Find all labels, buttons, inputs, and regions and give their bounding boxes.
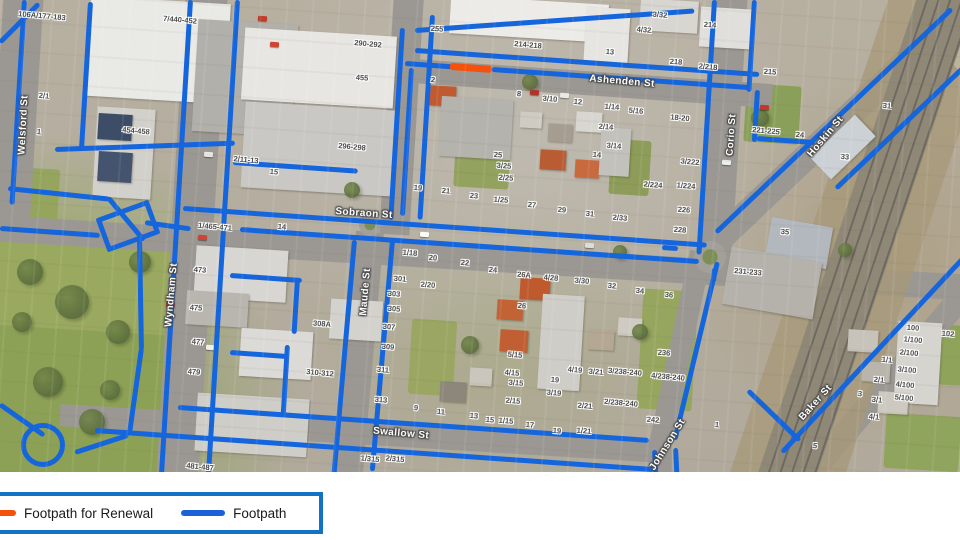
legend-footpath-label: Footpath: [233, 506, 286, 521]
parcel-label: 2/1: [38, 92, 49, 100]
parcel-label: 34: [636, 287, 645, 295]
parcel-label: 2: [431, 76, 436, 84]
building: [329, 298, 383, 341]
parcel-label: 1/21: [576, 427, 591, 436]
parcel-label: 2/238-240: [604, 398, 638, 408]
parcel-label: 479: [187, 368, 200, 377]
parcel-label: 3/19: [546, 389, 561, 398]
parcel-label: 5/15: [507, 351, 522, 360]
parcel-label: 3/222: [680, 157, 699, 166]
parcel-label: 5/16: [628, 107, 643, 116]
parcel-label: 4/28: [543, 274, 558, 283]
footpath-segment: [673, 448, 683, 472]
parcel-label: 13: [470, 412, 479, 420]
tree: [838, 243, 852, 257]
parcel-label: 2/25: [498, 174, 513, 183]
building: [438, 96, 514, 160]
parcel-label: 2/14: [598, 123, 613, 132]
tree: [106, 320, 130, 344]
parcel-label: 481-487: [186, 462, 214, 472]
parcel-label: 221-225: [752, 126, 780, 136]
parcel-label: 3/32: [652, 11, 667, 20]
building: [241, 101, 398, 196]
parcel-label: 3/15: [508, 379, 523, 388]
parcel-label: 214-218: [514, 40, 542, 50]
parcel-label: 9: [414, 404, 419, 412]
parcel-label: 4/19: [567, 366, 582, 375]
car: [560, 93, 569, 99]
parcel-label: 2/11-13: [233, 155, 259, 165]
parcel-label: 8: [517, 90, 522, 98]
parcel-label: 3/14: [606, 142, 621, 151]
building: [587, 329, 614, 351]
parcel-label: 12: [574, 98, 583, 106]
parcel-label: 4/32: [636, 26, 651, 35]
parcel-label: 24: [489, 266, 498, 274]
parcel-label: 23: [470, 192, 479, 200]
parcel-label: 290-292: [354, 39, 382, 49]
legend-renewal-label: Footpath for Renewal: [24, 506, 153, 521]
parcel-label: 18-20: [670, 113, 690, 122]
parcel-label: 15: [270, 168, 279, 176]
parcel-label: 228: [673, 226, 686, 235]
parcel-label: 33: [841, 153, 850, 161]
parcel-label: 3/100: [897, 365, 916, 374]
parcel-label: 24: [796, 131, 805, 139]
parcel-label: 3: [858, 390, 863, 398]
parcel-label: 2/100: [899, 348, 918, 357]
parcel-label: 226: [677, 206, 690, 215]
parcel-label: 301: [393, 275, 406, 284]
parcel-label: 31: [586, 210, 595, 218]
parcel-label: 26A: [517, 271, 531, 280]
tree: [522, 74, 538, 90]
parcel-label: 2/15: [505, 397, 520, 406]
parcel-label: 14: [278, 223, 287, 231]
parcel-label: 242: [646, 416, 659, 425]
parcel-label: 311: [377, 366, 390, 375]
parcel-label: 31: [883, 102, 892, 110]
parcel-label: 5: [813, 442, 818, 450]
renewal-line-swatch: [0, 510, 16, 516]
car: [420, 232, 429, 238]
footpath-loop: [21, 423, 65, 467]
tree: [12, 312, 32, 332]
parcel-label: 313: [374, 396, 387, 405]
parcel-label: 19: [414, 184, 423, 192]
parcel-label: 303: [387, 290, 400, 299]
parcel-label: 2/21: [577, 402, 592, 411]
parcel-label: 32: [608, 282, 617, 290]
parcel-label: 475: [189, 304, 202, 313]
car: [722, 160, 731, 166]
park-area: [883, 413, 960, 472]
tree: [17, 259, 43, 285]
parcel-label: 3/1: [871, 396, 882, 404]
parcel-label: 15: [486, 416, 495, 424]
footpath-segment: [711, 268, 717, 282]
building: [539, 149, 566, 171]
parcel-label: 4/1: [868, 413, 879, 421]
parcel-label: 2/224: [643, 180, 662, 189]
parcel-label: 1/315: [360, 454, 379, 463]
building: [520, 111, 543, 128]
building: [547, 123, 572, 142]
parcel-label: 19: [551, 376, 560, 384]
map-screenshot: 106A/177-1837/440-4522/11454-458290-2924…: [0, 0, 960, 540]
footpath-line-swatch: [181, 510, 225, 516]
parcel-label: 2/218: [698, 62, 717, 71]
parcel-label: 255: [430, 25, 443, 34]
parcel-label: 455: [355, 74, 368, 83]
parcel-label: 3/10: [542, 95, 557, 104]
parcel-label: 214: [703, 21, 716, 30]
parcel-label: 19: [553, 427, 562, 435]
parcel-label: 5/100: [894, 393, 913, 402]
parcel-label: 29: [558, 206, 567, 214]
building: [537, 294, 585, 391]
parcel-label: 100: [906, 324, 919, 333]
parcel-label: 21: [442, 187, 451, 195]
car: [585, 243, 594, 249]
parcel-label: 310-312: [306, 368, 334, 378]
car: [530, 90, 539, 96]
parcel-label: 22: [461, 259, 470, 267]
building: [469, 367, 492, 386]
parcel-label: 473: [193, 266, 206, 275]
parcel-label: 4/100: [895, 380, 914, 389]
tree: [100, 380, 120, 400]
car: [760, 105, 769, 111]
tree: [344, 182, 360, 198]
parcel-label: 27: [528, 201, 537, 209]
parcel-label: 1/14: [604, 103, 619, 112]
parcel-label: 3/21: [588, 368, 603, 377]
parcel-label: 2/33: [612, 214, 627, 223]
building: [97, 151, 133, 183]
tree: [632, 324, 648, 340]
parcel-label: 231-233: [734, 267, 762, 277]
parcel-label: 1/25: [493, 196, 508, 205]
parcel-label: 35: [781, 228, 790, 236]
parcel-label: 307: [382, 323, 395, 332]
parcel-label: 305: [387, 305, 400, 314]
parcel-label: 17: [526, 421, 535, 429]
parcel-label: 1/18: [402, 249, 417, 258]
car: [204, 152, 213, 158]
parcel-label: 25: [494, 151, 503, 159]
car: [270, 42, 279, 48]
parcel-label: 308A: [313, 319, 332, 328]
parcel-label: 3/25: [496, 162, 511, 171]
parcel-label: 236: [657, 349, 670, 358]
footpath-segment: [662, 245, 678, 251]
parcel-label: 296-298: [338, 142, 366, 152]
aerial-map[interactable]: 106A/177-1837/440-4522/11454-458290-2924…: [0, 0, 960, 472]
parcel-label: 218: [669, 58, 682, 67]
building: [599, 127, 632, 177]
parcel-label: 1/100: [903, 335, 922, 344]
car: [258, 16, 267, 22]
parcel-label: 1: [37, 128, 42, 136]
parcel-label: 1: [715, 421, 720, 429]
tree: [55, 285, 89, 319]
parcel-label: 454-458: [122, 126, 150, 136]
parcel-label: 2/315: [385, 454, 404, 463]
parcel-label: 2/1: [873, 376, 884, 384]
footpath-segment: [292, 278, 300, 334]
parcel-label: 477: [191, 338, 204, 347]
parcel-label: 2/20: [420, 281, 435, 290]
building: [574, 159, 599, 178]
car: [198, 235, 207, 241]
parcel-label: 1/224: [676, 181, 695, 190]
parcel-label: 1/15: [498, 417, 513, 426]
parcel-label: 36: [665, 291, 674, 299]
legend: Footpath for Renewal Footpath: [0, 492, 323, 534]
parcel-label: 11: [437, 408, 446, 416]
building: [439, 381, 466, 403]
parcel-label: 3/238-240: [608, 367, 642, 377]
parcel-label: 309: [381, 343, 394, 352]
parcel-label: 215: [763, 68, 776, 77]
parcel-label: 3/30: [574, 277, 589, 286]
parcel-label: 26: [518, 302, 527, 310]
parcel-label: 13: [606, 48, 615, 56]
parcel-label: 14: [593, 151, 602, 159]
parcel-label: 102: [941, 330, 954, 339]
parcel-label: 20: [429, 254, 438, 262]
parcel-label: 1/1: [881, 356, 892, 364]
parcel-label: 4/15: [504, 369, 519, 378]
tree: [33, 367, 63, 397]
tree: [461, 336, 479, 354]
